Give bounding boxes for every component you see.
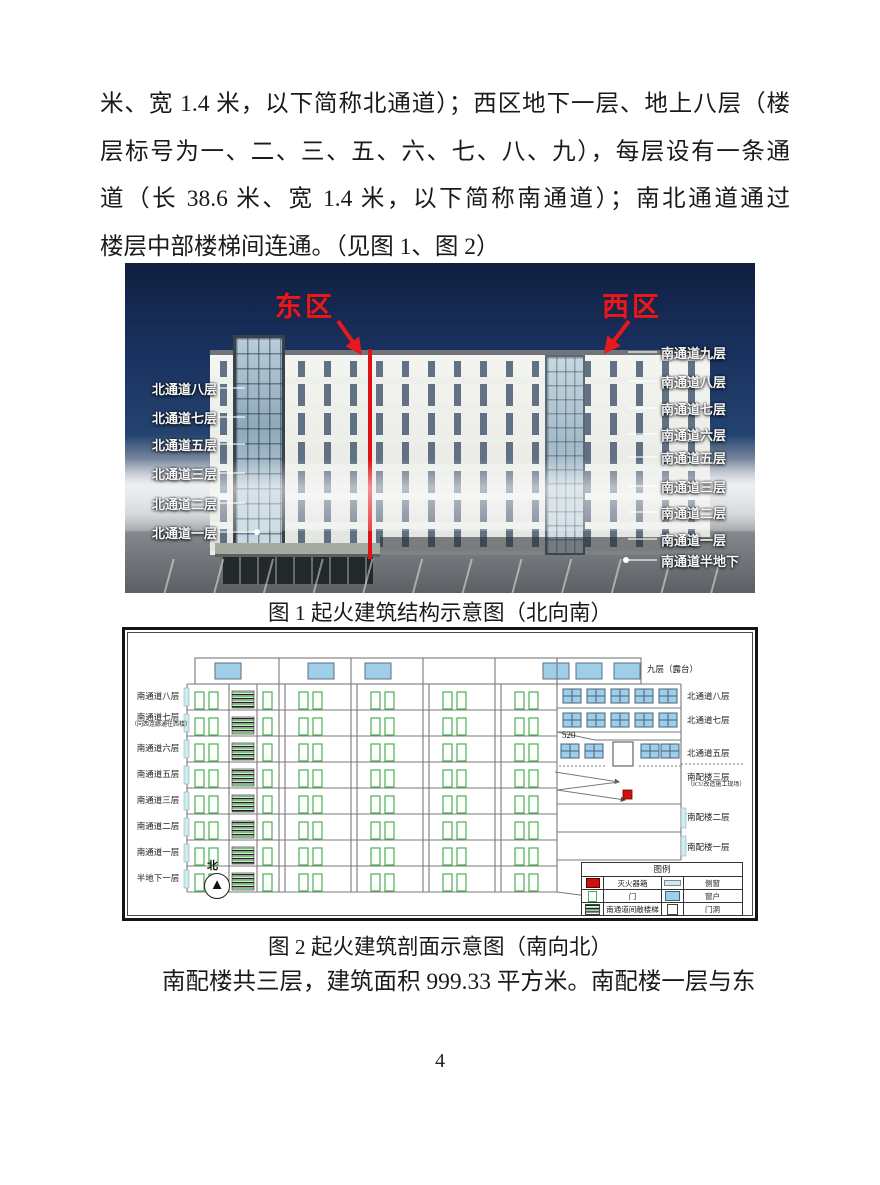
floor-label-south-2: 南通道二层	[661, 503, 726, 522]
floor-label-south-9: 南通道九层	[661, 343, 726, 362]
section-label-south-6: 南通道六层	[131, 743, 185, 753]
legend-door-icon	[582, 890, 604, 902]
page-number: 4	[0, 1050, 880, 1073]
section-label-annex-3: 南配楼三层（ICU改造施工现场）	[687, 772, 751, 789]
legend-extinguisher-box-icon	[582, 877, 604, 889]
section-label-halfbasement: 半地下一层	[131, 873, 185, 883]
section-label-annex-2: 南配楼二层	[687, 812, 751, 822]
figure1-building-rendering: 东区 西区 北通道八层 北通道七层 北通道五层 北通道三层 北通道二层 北通道一…	[125, 263, 755, 593]
floor-label-south-6: 南通道六层	[661, 425, 726, 444]
section-label-south-2: 南通道二层	[131, 821, 185, 831]
floor-label-north-1: 北通道一层	[141, 523, 217, 542]
floor-label-south-1: 南通道一层	[661, 530, 726, 549]
facade-floor-bands	[210, 355, 710, 555]
legend-open-staircase-icon	[582, 903, 604, 915]
floor-label-south-8: 南通道八层	[661, 372, 726, 391]
figure2-section-diagram: 520 南通道八层 南通道七层（向西连廊通往西楼） 南通道六层 南通道五层 南通…	[122, 627, 758, 921]
legend-side-window-icon	[662, 877, 684, 889]
legend-table: 图例 灭火器箱 侧窗 门 窗户 南通道间敞楼梯 门洞	[581, 862, 743, 916]
floor-label-north-2: 北通道二层	[141, 494, 217, 513]
floor-label-south-3: 南通道三层	[661, 477, 726, 496]
section-label-north-8: 北通道八层	[687, 691, 751, 701]
legend-door-opening-icon	[662, 903, 684, 915]
zone-label-east: 东区	[275, 285, 335, 324]
floor-label-south-halfbasement: 南通道半地下	[661, 551, 739, 570]
document-page: { "document": { "body_lines": [ "米、宽 1.4…	[0, 0, 880, 1185]
paragraph-line: 层标号为一、二、三、五、六、七、八、九），每层设有一条通	[100, 129, 790, 177]
annotation-520: 520	[562, 730, 576, 740]
east-west-divider-line	[368, 349, 372, 559]
floor-label-north-8: 北通道八层	[141, 379, 217, 398]
entrance-canopy	[215, 543, 380, 557]
paragraph-line: 道（长 38.6 米、宽 1.4 米，以下简称南通道）；南北通道通过	[100, 176, 790, 224]
floor-label-south-7: 南通道七层	[661, 399, 726, 418]
section-label-south-3: 南通道三层	[131, 795, 185, 805]
section-label-south-8: 南通道八层	[131, 691, 185, 701]
figure1-caption: 图 1 起火建筑结构示意图（北向南）	[0, 596, 880, 627]
compass-icon: ▲	[204, 873, 230, 899]
legend-label: 南通道间敞楼梯	[604, 903, 662, 915]
section-label-south-5: 南通道五层	[131, 769, 185, 779]
east-glass-stair-tower	[233, 335, 285, 561]
section-label-south-7: 南通道七层（向西连廊通往西楼）	[131, 712, 185, 729]
section-label-annex-1: 南配楼一层	[687, 842, 751, 852]
legend-label: 侧窗	[684, 877, 741, 889]
section-label-south-1: 南通道一层	[131, 847, 185, 857]
paragraph-line: 米、宽 1.4 米，以下简称北通道）；西区地下一层、地上八层（楼	[100, 81, 790, 129]
legend-row: 门 窗户	[582, 890, 742, 903]
floor-label-north-7: 北通道七层	[141, 408, 217, 427]
legend-title: 图例	[582, 863, 742, 877]
legend-window-icon	[662, 890, 684, 902]
legend-label: 灭火器箱	[604, 877, 662, 889]
section-label-north-5: 北通道五层	[687, 748, 751, 758]
building-facade	[210, 355, 710, 555]
floor-label-north-3: 北通道三层	[141, 464, 217, 483]
legend-row: 灭火器箱 侧窗	[582, 877, 742, 890]
floor-label-north-5: 北通道五层	[141, 435, 217, 454]
floor-label-south-5: 南通道五层	[661, 448, 726, 467]
intro-paragraph: 米、宽 1.4 米，以下简称北通道）；西区地下一层、地上八层（楼 层标号为一、二…	[100, 81, 790, 271]
section-label-terrace-9: 九层（露台）	[647, 664, 747, 674]
legend-row: 南通道间敞楼梯 门洞	[582, 903, 742, 915]
zone-label-west: 西区	[602, 285, 662, 324]
figure2-caption: 图 2 起火建筑剖面示意图（南向北）	[0, 930, 880, 961]
west-glass-tower	[545, 355, 585, 555]
closing-paragraph: 南配楼共三层，建筑面积 999.33 平方米。南配楼一层与东	[100, 962, 790, 1002]
compass-north-label: 北	[207, 857, 218, 873]
legend-label: 门	[604, 890, 662, 902]
legend-label: 门洞	[684, 903, 741, 915]
section-label-north-7: 北通道七层	[687, 715, 751, 725]
legend-label: 窗户	[684, 890, 741, 902]
